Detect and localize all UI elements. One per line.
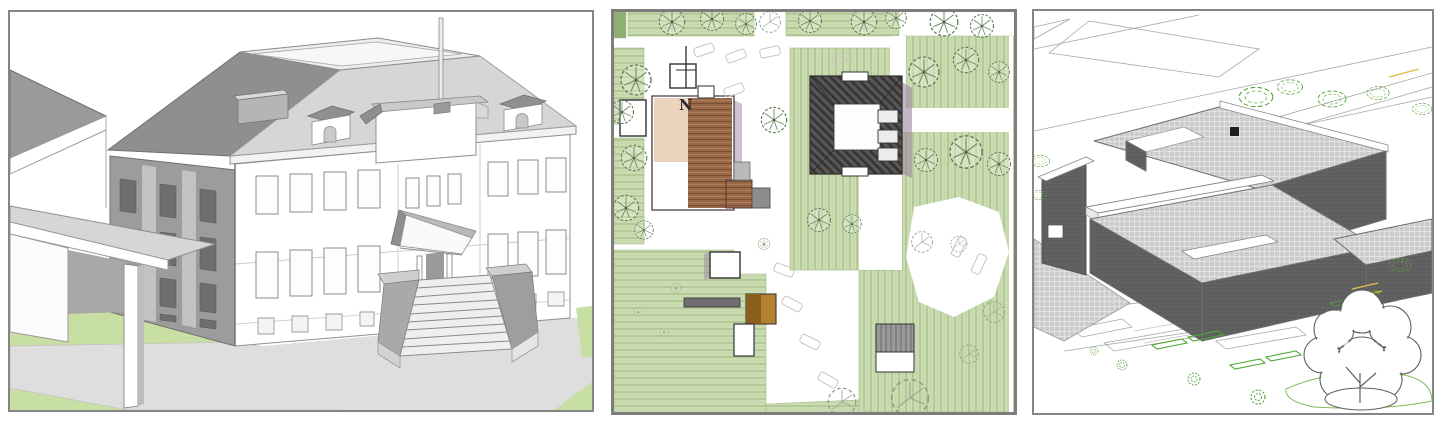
- left-block: [1038, 157, 1094, 275]
- entrance-stairs: [378, 264, 538, 368]
- bench: [684, 298, 740, 307]
- panel-axonometric-drawing: [1032, 9, 1434, 415]
- north-label: N: [679, 96, 693, 114]
- plan-dormers: [878, 110, 898, 161]
- architecture-image-collage: N: [0, 0, 1446, 428]
- massing-model-drawing: [10, 12, 592, 410]
- white-hut: [670, 64, 696, 88]
- neighbour-building: [10, 70, 106, 208]
- site-plan-drawing: N: [614, 12, 1014, 412]
- panel-massing-model: [8, 10, 594, 412]
- hip-roof-building-plan: [810, 72, 912, 178]
- dark-doorway: [1230, 127, 1239, 136]
- wing-column: [124, 264, 138, 408]
- roof-pavilion: [360, 96, 488, 163]
- panel-site-plan: N: [611, 9, 1017, 415]
- roof-chimney: [234, 90, 288, 124]
- gray-building: [876, 324, 914, 372]
- flagpole: [439, 18, 443, 110]
- axonometric-drawing: [1034, 11, 1432, 413]
